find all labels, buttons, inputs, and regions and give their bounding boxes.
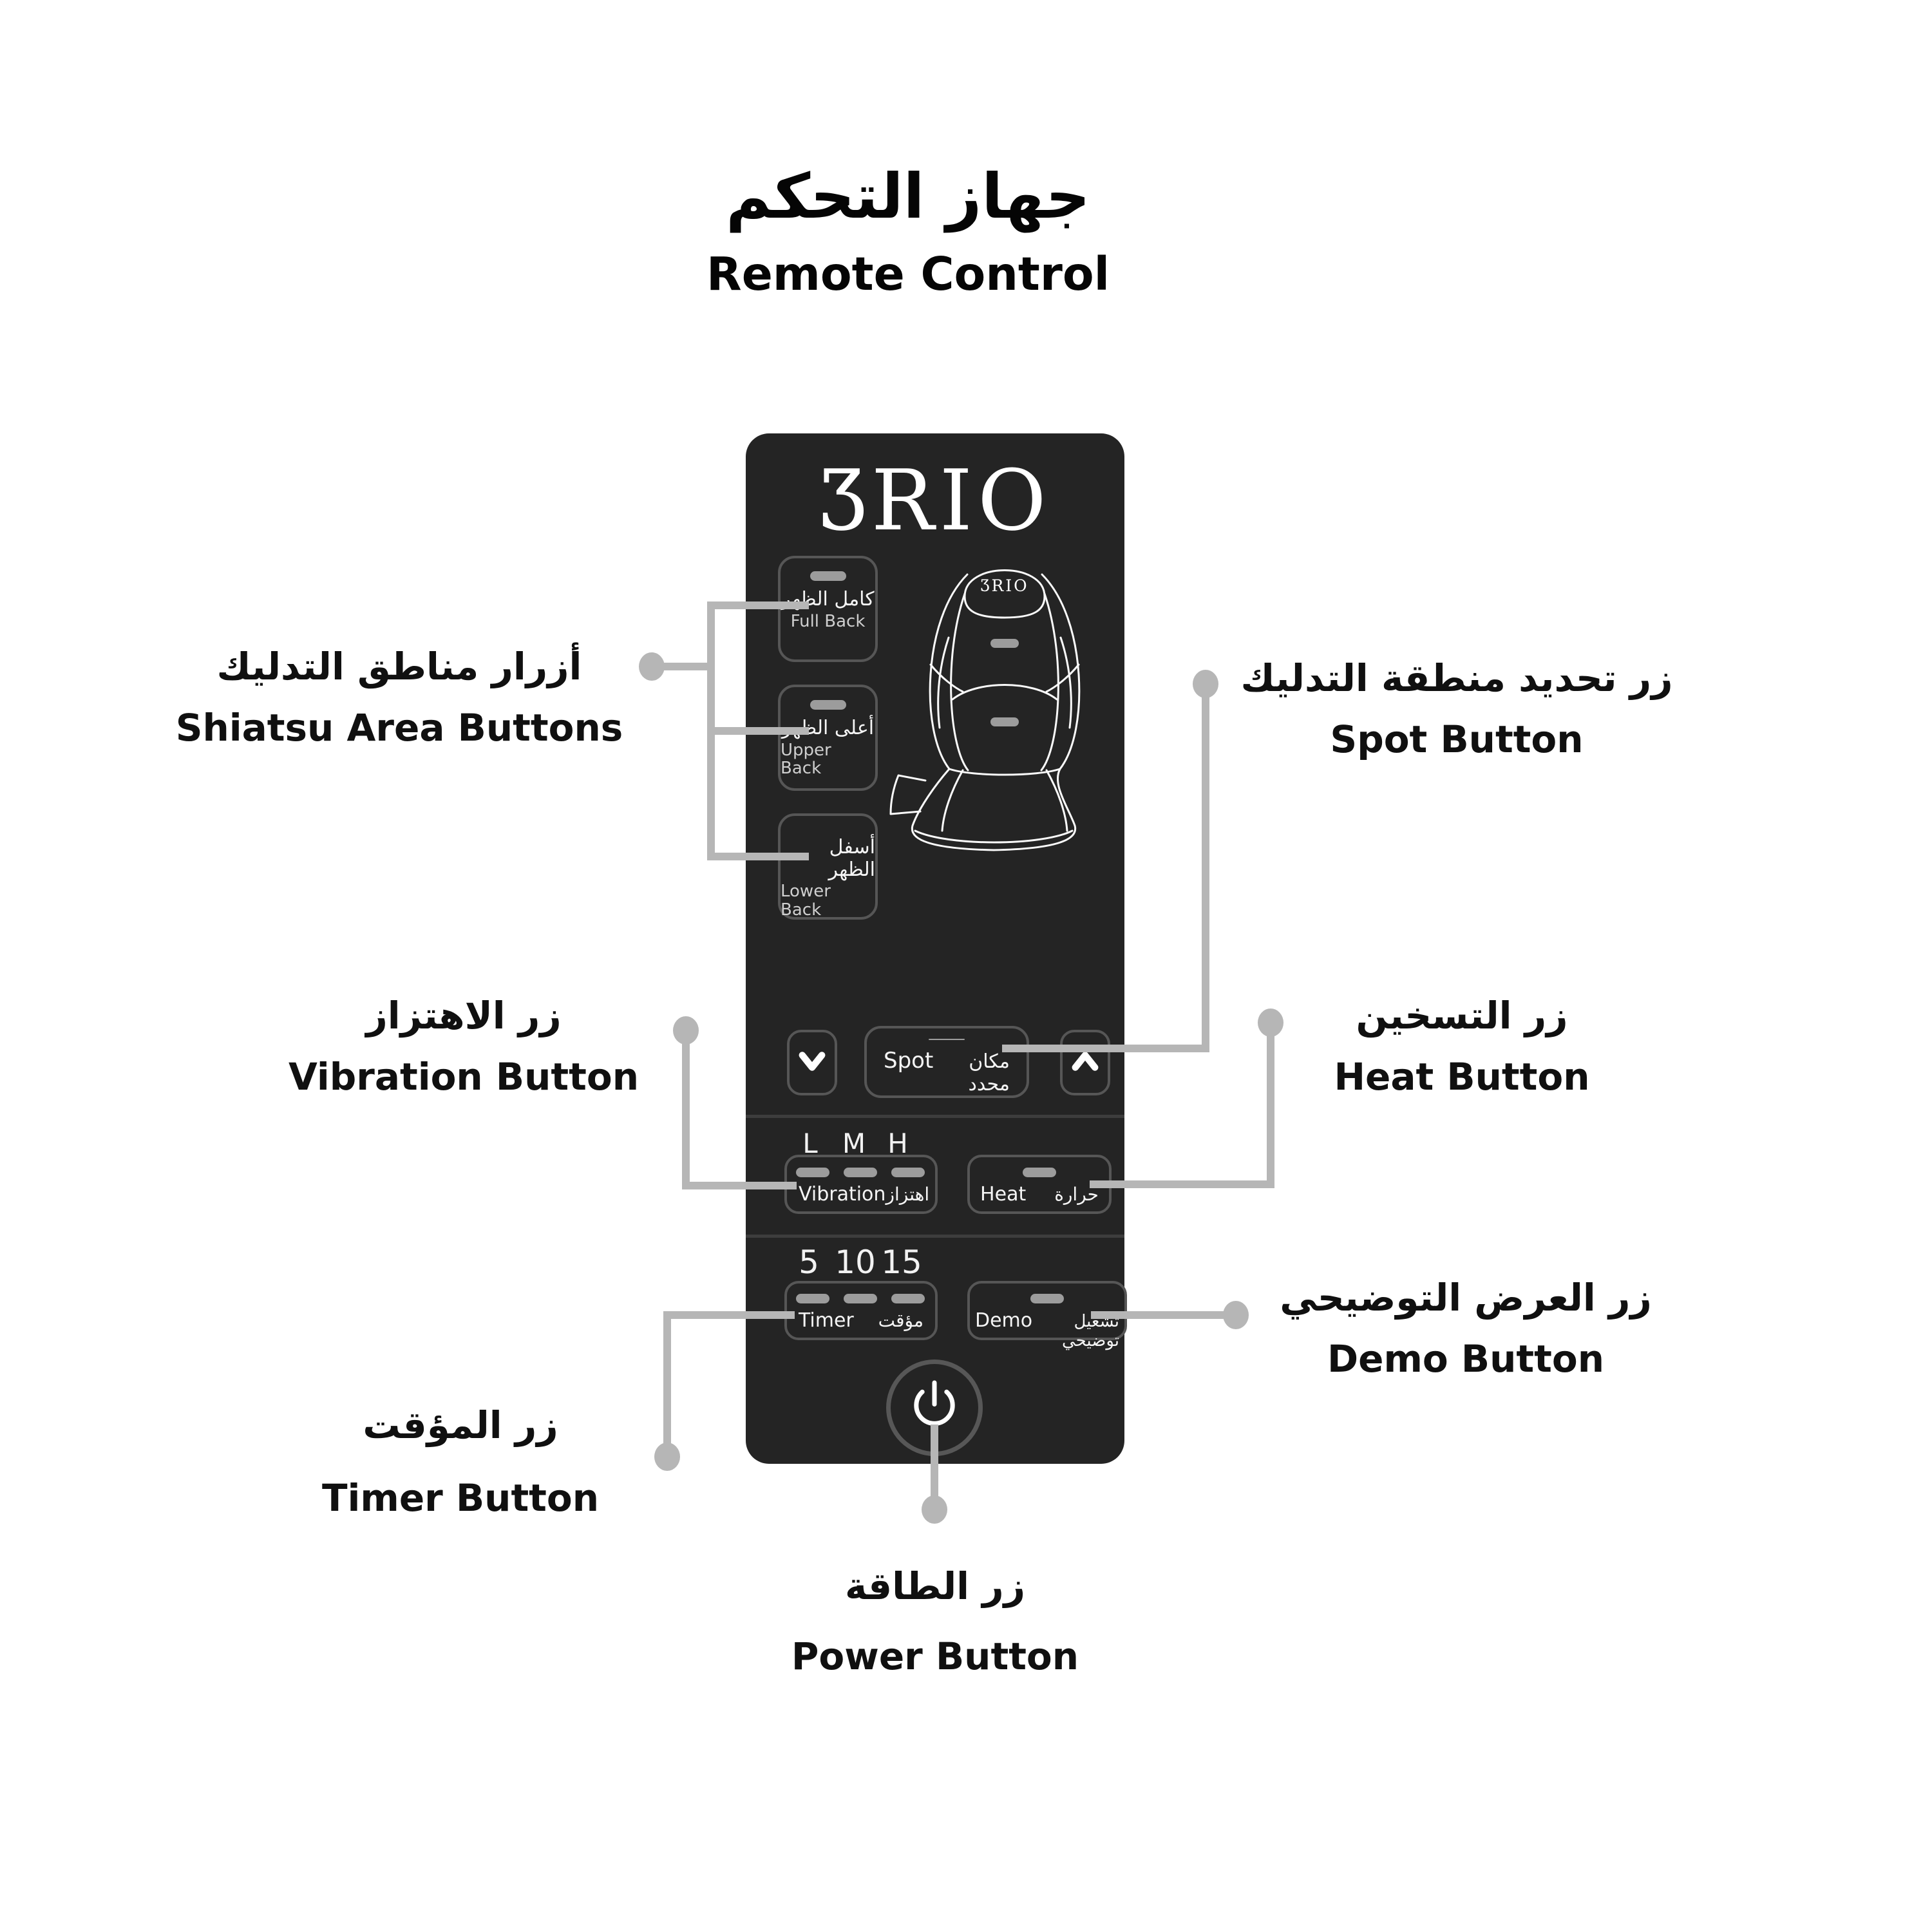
massage-seat-illustration: ƷRIO	[885, 555, 1098, 855]
lower-back-label-en: Lower Back	[781, 882, 875, 919]
power-callout-dot	[922, 1495, 947, 1524]
shiatsu-callout-stub-full-back	[707, 601, 809, 609]
chevron-up-icon	[1070, 1049, 1100, 1076]
label-timer-ar: زر المؤقت	[203, 1400, 718, 1450]
lower-back-button[interactable]: أسفل الظهر Lower Back	[778, 813, 878, 920]
vibration-label-ar: اهتزاز	[885, 1184, 929, 1205]
timer-label-en: Timer	[799, 1309, 854, 1332]
heat-callout-line-vertical	[1267, 1021, 1274, 1188]
spot-button[interactable]: Spot مكان محدد	[864, 1026, 1029, 1098]
spot-label-ar: مكان محدد	[933, 1050, 1010, 1095]
label-spot-ar: زر تحديد منطقة التدليك	[1199, 653, 1714, 703]
heat-label-en: Heat	[980, 1183, 1026, 1206]
spot-led-indicator	[929, 1039, 965, 1040]
upper-back-led-indicator	[810, 700, 846, 710]
demo-label-en: Demo	[975, 1309, 1032, 1332]
heat-callout-line-horizontal	[1090, 1180, 1274, 1188]
label-demo-ar: زر العرض التوضيحي	[1208, 1273, 1723, 1323]
timer-button[interactable]: Timer مؤقت	[784, 1281, 938, 1340]
spot-callout-line-vertical	[1202, 683, 1209, 1052]
label-spot-en: Spot Button	[1199, 717, 1714, 762]
timer-led-5	[796, 1294, 829, 1303]
duration-10: 10	[832, 1244, 878, 1281]
label-timer-en: Timer Button	[203, 1476, 718, 1521]
label-vibration-en: Vibration Button	[206, 1055, 721, 1100]
page-title-english: Remote Control	[586, 247, 1230, 301]
spot-up-button[interactable]	[1060, 1030, 1110, 1095]
vibration-label-en: Vibration	[799, 1183, 885, 1206]
label-power-ar: زر الطاقة	[677, 1561, 1193, 1611]
timer-led-15	[891, 1294, 925, 1303]
vibration-led-high	[891, 1168, 925, 1177]
label-shiatsu-ar: أزرار مناطق التدليك	[142, 641, 657, 692]
vibration-callout-line-vertical	[682, 1029, 690, 1189]
timer-duration-labels: 5 10 15	[786, 1244, 925, 1281]
shiatsu-callout-line	[650, 663, 715, 670]
label-vibration-button: زر الاهتزاز Vibration Button	[206, 990, 721, 1100]
chevron-down-icon	[797, 1049, 827, 1076]
shiatsu-callout-stub-lower-back	[707, 853, 809, 860]
divider-line	[746, 1115, 1124, 1118]
label-demo-en: Demo Button	[1208, 1337, 1723, 1382]
spot-down-button[interactable]	[787, 1030, 837, 1095]
duration-15: 15	[878, 1244, 925, 1281]
timer-callout-line-horizontal	[663, 1311, 795, 1319]
shiatsu-callout-stub-upper-back	[707, 727, 809, 735]
seat-led-lower	[990, 717, 1019, 726]
seat-brio-logo: ƷRIO	[980, 576, 1028, 595]
seat-led-upper	[990, 639, 1019, 648]
label-vibration-ar: زر الاهتزاز	[206, 990, 721, 1041]
upper-back-label-en: Upper Back	[781, 741, 875, 778]
label-power-en: Power Button	[677, 1634, 1193, 1680]
timer-label-ar: مؤقت	[878, 1310, 923, 1331]
heat-led-indicator	[1023, 1168, 1056, 1177]
label-heat-button: زر التسخين Heat Button	[1204, 990, 1719, 1100]
demo-button[interactable]: Demo تشغيل توضيحي	[967, 1281, 1127, 1340]
vibration-led-medium	[844, 1168, 877, 1177]
label-timer-button: زر المؤقت Timer Button	[203, 1400, 718, 1521]
vibration-led-low	[796, 1168, 829, 1177]
spot-callout-line-horizontal	[1002, 1045, 1209, 1052]
full-back-label-en: Full Back	[791, 612, 866, 631]
vibration-button[interactable]: Vibration اهتزاز	[784, 1155, 938, 1214]
page-title-arabic: جهاز التحكم	[586, 160, 1230, 234]
demo-led-indicator	[1030, 1294, 1064, 1303]
spot-label-en: Spot	[884, 1048, 933, 1074]
vibration-callout-line-horizontal	[682, 1182, 797, 1189]
upper-back-button[interactable]: أعلى الظهر Upper Back	[778, 685, 878, 791]
timer-callout-line-vertical	[663, 1311, 671, 1454]
timer-callout-dot	[654, 1443, 680, 1471]
label-heat-en: Heat Button	[1204, 1055, 1719, 1100]
brio-logo: ƷRIO	[746, 457, 1124, 545]
label-demo-button: زر العرض التوضيحي Demo Button	[1208, 1273, 1723, 1382]
demo-callout-line	[1091, 1311, 1236, 1319]
label-power-button: زر الطاقة Power Button	[677, 1561, 1193, 1680]
timer-led-10	[844, 1294, 877, 1303]
label-shiatsu-en: Shiatsu Area Buttons	[142, 706, 657, 751]
full-back-led-indicator	[810, 571, 846, 581]
label-spot-button: زر تحديد منطقة التدليك Spot Button	[1199, 653, 1714, 762]
label-shiatsu-area-buttons: أزرار مناطق التدليك Shiatsu Area Buttons	[142, 641, 657, 751]
duration-5: 5	[786, 1244, 832, 1281]
divider-line	[746, 1235, 1124, 1238]
remote-control-body: ƷRIO كامل الظهر Full Back أعلى الظهر Upp…	[746, 433, 1124, 1464]
